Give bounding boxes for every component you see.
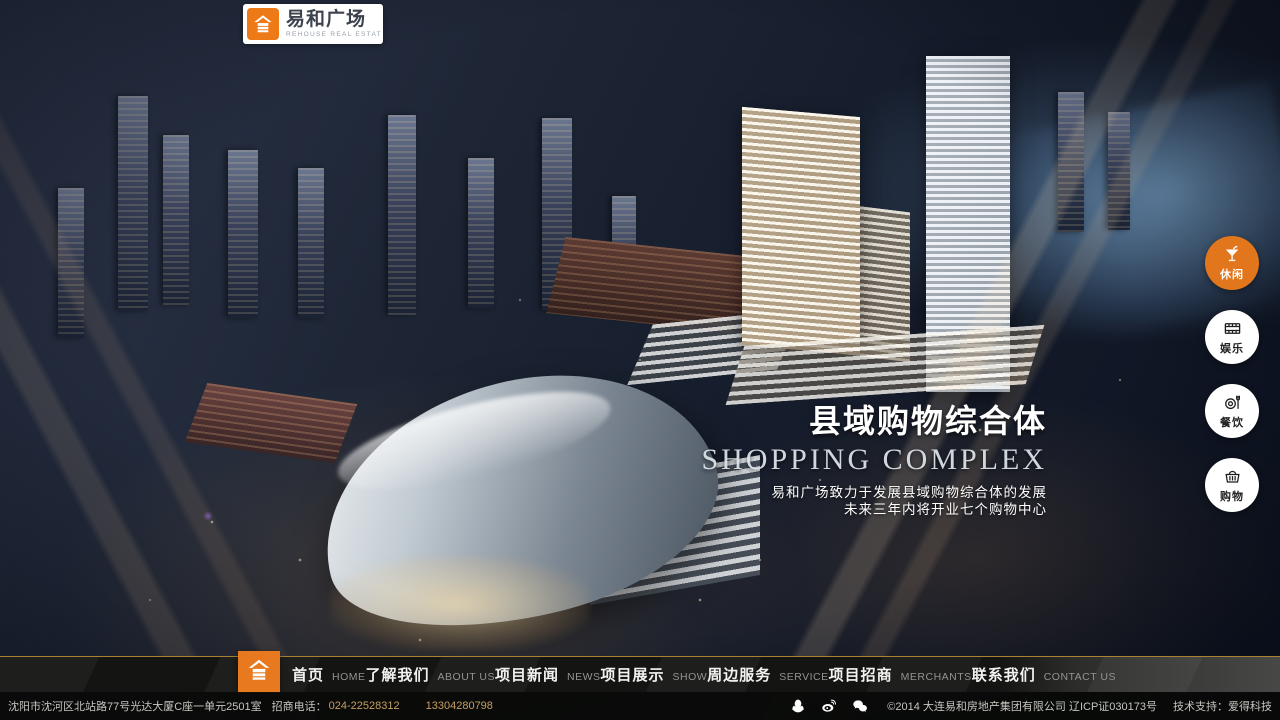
- dining-icon: [1223, 393, 1242, 412]
- nav-label-cn: 项目新闻: [495, 664, 559, 685]
- logo[interactable]: 易和广场 REHOUSE REAL ESTAT: [243, 4, 383, 44]
- nav-item-news[interactable]: 项目新闻 NEWS: [495, 664, 601, 685]
- footer-phone-label: 招商电话：: [272, 698, 327, 714]
- nav-item-about[interactable]: 了解我们 ABOUT US: [366, 664, 496, 685]
- house-icon: [246, 657, 272, 688]
- qq-icon[interactable]: [790, 698, 806, 714]
- logo-brand-en: REHOUSE REAL ESTAT: [286, 32, 382, 39]
- wechat-icon[interactable]: [852, 698, 868, 714]
- footer-tech-support: 技术支持：爱得科技: [1173, 698, 1272, 714]
- basket-icon: [1223, 467, 1242, 486]
- nav-item-show[interactable]: 项目展示 SHOW: [601, 664, 708, 685]
- footer-phone-1: 024-22528312: [329, 700, 400, 712]
- nav-item-service[interactable]: 周边服务 SERVICE: [707, 664, 828, 685]
- nav-items: 首页 HOME 了解我们 ABOUT US 项目新闻 NEWS 项目展示 SHO…: [292, 657, 1043, 692]
- category-quick-nav: 休闲 娱乐: [1205, 236, 1259, 512]
- nav-label-en: NEWS: [567, 671, 601, 683]
- home-button[interactable]: [238, 651, 280, 693]
- nav-label-en: SHOW: [673, 671, 708, 683]
- side-button-label: 娱乐: [1220, 340, 1244, 356]
- nav-label-en: SERVICE: [779, 671, 828, 683]
- hero-title-en: SHOPPING COMPLEX: [701, 443, 1047, 477]
- nav-label-en: MERCHANTS: [901, 671, 972, 683]
- footer-phone-2: 13304280798: [426, 700, 493, 712]
- nav-label-cn: 项目招商: [829, 664, 893, 685]
- hero-title-cn: 县域购物综合体: [701, 396, 1047, 442]
- main-nav: 首页 HOME 了解我们 ABOUT US 项目新闻 NEWS 项目展示 SHO…: [0, 656, 1280, 692]
- side-button-label: 餐饮: [1220, 414, 1244, 430]
- hero-background-render: [0, 0, 1280, 720]
- nav-label-cn: 项目展示: [601, 664, 665, 685]
- side-button-entertainment[interactable]: 娱乐: [1205, 310, 1259, 364]
- footer: 沈阳市沈河区北站路77号光达大厦C座一单元2501室 招商电话： 024-225…: [0, 692, 1280, 720]
- logo-brand-cn: 易和广场: [286, 10, 382, 29]
- footer-meta: ©2014 大连易和房地产集团有限公司 辽ICP证030173号 技术支持：爱得…: [790, 698, 1272, 714]
- nav-label-cn: 周边服务: [707, 664, 771, 685]
- footer-contact-info: 沈阳市沈河区北站路77号光达大厦C座一单元2501室 招商电话： 024-225…: [8, 698, 493, 714]
- house-icon: [247, 8, 279, 40]
- hero-subtitle-line2: 未来三年内将开业七个购物中心: [701, 501, 1047, 518]
- nav-label-cn: 首页: [292, 664, 324, 685]
- nav-item-merchants[interactable]: 项目招商 MERCHANTS: [829, 664, 972, 685]
- cocktail-icon: [1223, 245, 1242, 264]
- logo-text: 易和广场 REHOUSE REAL ESTAT: [286, 10, 382, 39]
- weibo-icon[interactable]: [821, 698, 837, 714]
- footer-address: 沈阳市沈河区北站路77号光达大厦C座一单元2501室: [8, 698, 262, 714]
- side-button-dining[interactable]: 餐饮: [1205, 384, 1259, 438]
- side-button-label: 休闲: [1220, 266, 1244, 282]
- footer-copyright: ©2014 大连易和房地产集团有限公司 辽ICP证030173号: [887, 698, 1157, 714]
- hero-text: 县域购物综合体 SHOPPING COMPLEX 易和广场致力于发展县域购物综合…: [701, 396, 1047, 518]
- side-button-leisure[interactable]: 休闲: [1205, 236, 1259, 290]
- nav-label-en: CONTACT US: [1044, 671, 1116, 683]
- side-button-shopping[interactable]: 购物: [1205, 458, 1259, 512]
- side-button-label: 购物: [1220, 488, 1244, 504]
- film-icon: [1223, 319, 1242, 338]
- nav-label-cn: 联系我们: [972, 664, 1036, 685]
- nav-label-cn: 了解我们: [366, 664, 430, 685]
- vignette-overlay: [0, 0, 1280, 720]
- page: 易和广场 REHOUSE REAL ESTAT 休闲: [0, 0, 1280, 720]
- nav-label-en: ABOUT US: [438, 671, 495, 683]
- hero-subtitle-line1: 易和广场致力于发展县域购物综合体的发展: [701, 484, 1047, 501]
- nav-item-home[interactable]: 首页 HOME: [292, 664, 366, 685]
- nav-item-contact[interactable]: 联系我们 CONTACT US: [972, 664, 1116, 685]
- nav-label-en: HOME: [332, 671, 366, 683]
